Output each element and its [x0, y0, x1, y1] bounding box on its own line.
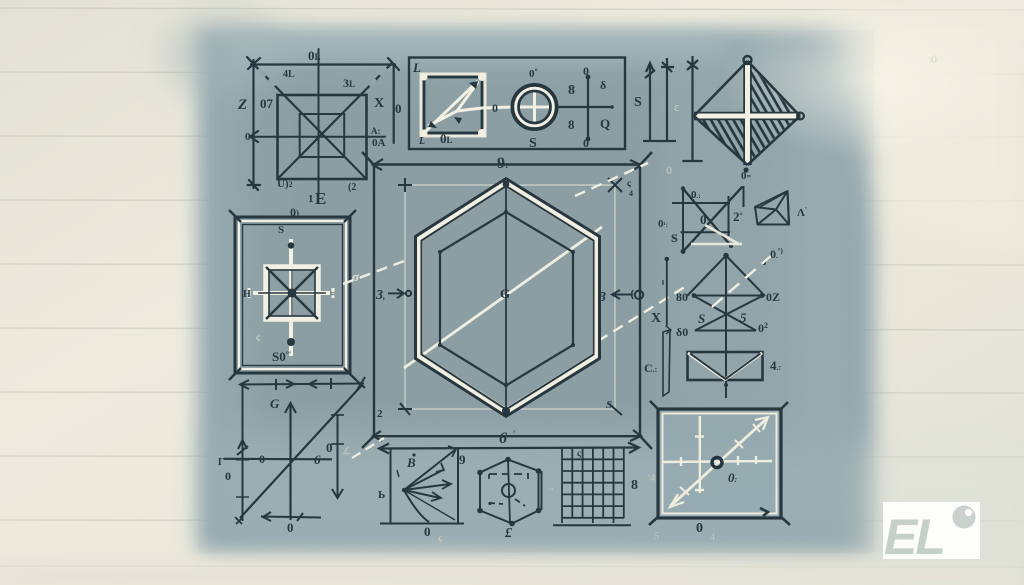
- svg-text:0: 0: [583, 136, 589, 150]
- svg-text:E: E: [315, 189, 326, 208]
- svg-text:X: X: [651, 311, 661, 326]
- svg-text:S: S: [278, 224, 284, 236]
- svg-text:S: S: [529, 136, 537, 151]
- svg-text:3: 3: [598, 290, 606, 305]
- svg-text:S: S: [671, 231, 678, 245]
- svg-text:′: ′: [513, 429, 516, 439]
- svg-text:ς: ς: [627, 178, 631, 188]
- svg-text:6: 6: [499, 430, 507, 447]
- svg-text:0: 0: [287, 520, 294, 535]
- svg-text:0: 0: [931, 52, 937, 66]
- svg-text:σ: σ: [352, 269, 359, 284]
- svg-text:S: S: [634, 95, 642, 110]
- svg-text:4: 4: [710, 532, 715, 543]
- svg-text:Z: Z: [237, 97, 247, 113]
- svg-text:0: 0: [492, 101, 498, 115]
- svg-text:0: 0: [696, 521, 703, 536]
- svg-text:A:: A:: [371, 126, 381, 136]
- svg-text:80: 80: [676, 290, 688, 304]
- svg-text:0A: 0A: [372, 137, 386, 149]
- svg-text:0: 0: [259, 452, 265, 466]
- svg-text:5: 5: [654, 531, 659, 542]
- svg-text:0): 0): [290, 205, 299, 219]
- svg-text:ς: ς: [256, 332, 260, 342]
- svg-text:3L: 3L: [343, 76, 355, 90]
- svg-text:3,: 3,: [375, 288, 385, 303]
- svg-text:G: G: [500, 286, 510, 301]
- svg-text:4: 4: [629, 189, 633, 198]
- svg-text:=: =: [330, 289, 335, 299]
- svg-text:2: 2: [377, 408, 383, 420]
- svg-text:EL: EL: [884, 509, 944, 565]
- svg-text:8: 8: [568, 117, 575, 132]
- svg-text:U)2: U)2: [277, 178, 293, 190]
- svg-text:0: 0: [245, 131, 251, 143]
- svg-text:8: 8: [568, 83, 575, 98]
- svg-text:L: L: [418, 136, 425, 147]
- svg-text:δ: δ: [600, 78, 606, 92]
- svg-text:∠: ∠: [342, 446, 351, 457]
- svg-text:0Z: 0Z: [766, 290, 780, 304]
- svg-text:δ0: δ0: [676, 325, 688, 339]
- svg-text:S: S: [698, 311, 705, 326]
- svg-text:5: 5: [740, 310, 747, 325]
- svg-text:ς: ς: [577, 448, 581, 458]
- svg-text:0: 0: [583, 64, 589, 78]
- svg-text:′4: ′4: [648, 473, 655, 484]
- svg-text:£: £: [504, 526, 513, 541]
- svg-text:0: 0: [326, 440, 333, 455]
- svg-text:X: X: [374, 96, 384, 111]
- svg-text:4L: 4L: [283, 69, 295, 80]
- svg-text:S: S: [606, 399, 612, 411]
- svg-text:G: G: [270, 396, 280, 411]
- svg-text:6: 6: [314, 452, 321, 467]
- svg-text:H: H: [243, 289, 251, 300]
- svg-text:0=: 0=: [741, 170, 752, 182]
- svg-text:1: 1: [308, 193, 314, 205]
- svg-text:Ь: Ь: [378, 489, 385, 501]
- svg-text:0: 0: [395, 101, 402, 116]
- svg-text:Γ: Γ: [218, 457, 224, 468]
- svg-text:07: 07: [260, 96, 274, 111]
- svg-text:ε: ε: [674, 99, 680, 114]
- svg-text:Q: Q: [600, 116, 610, 131]
- svg-text:(2: (2: [348, 182, 356, 193]
- svg-text:9: 9: [459, 452, 466, 467]
- svg-text:L: L: [412, 60, 421, 75]
- svg-text:8: 8: [631, 478, 638, 493]
- svg-text:0: 0: [666, 163, 672, 177]
- svg-text:B: B: [406, 455, 416, 470]
- svg-text:0: 0: [700, 212, 707, 227]
- svg-text:0: 0: [225, 469, 231, 483]
- svg-text:′′: ′′: [549, 487, 553, 498]
- svg-text:0: 0: [424, 524, 431, 539]
